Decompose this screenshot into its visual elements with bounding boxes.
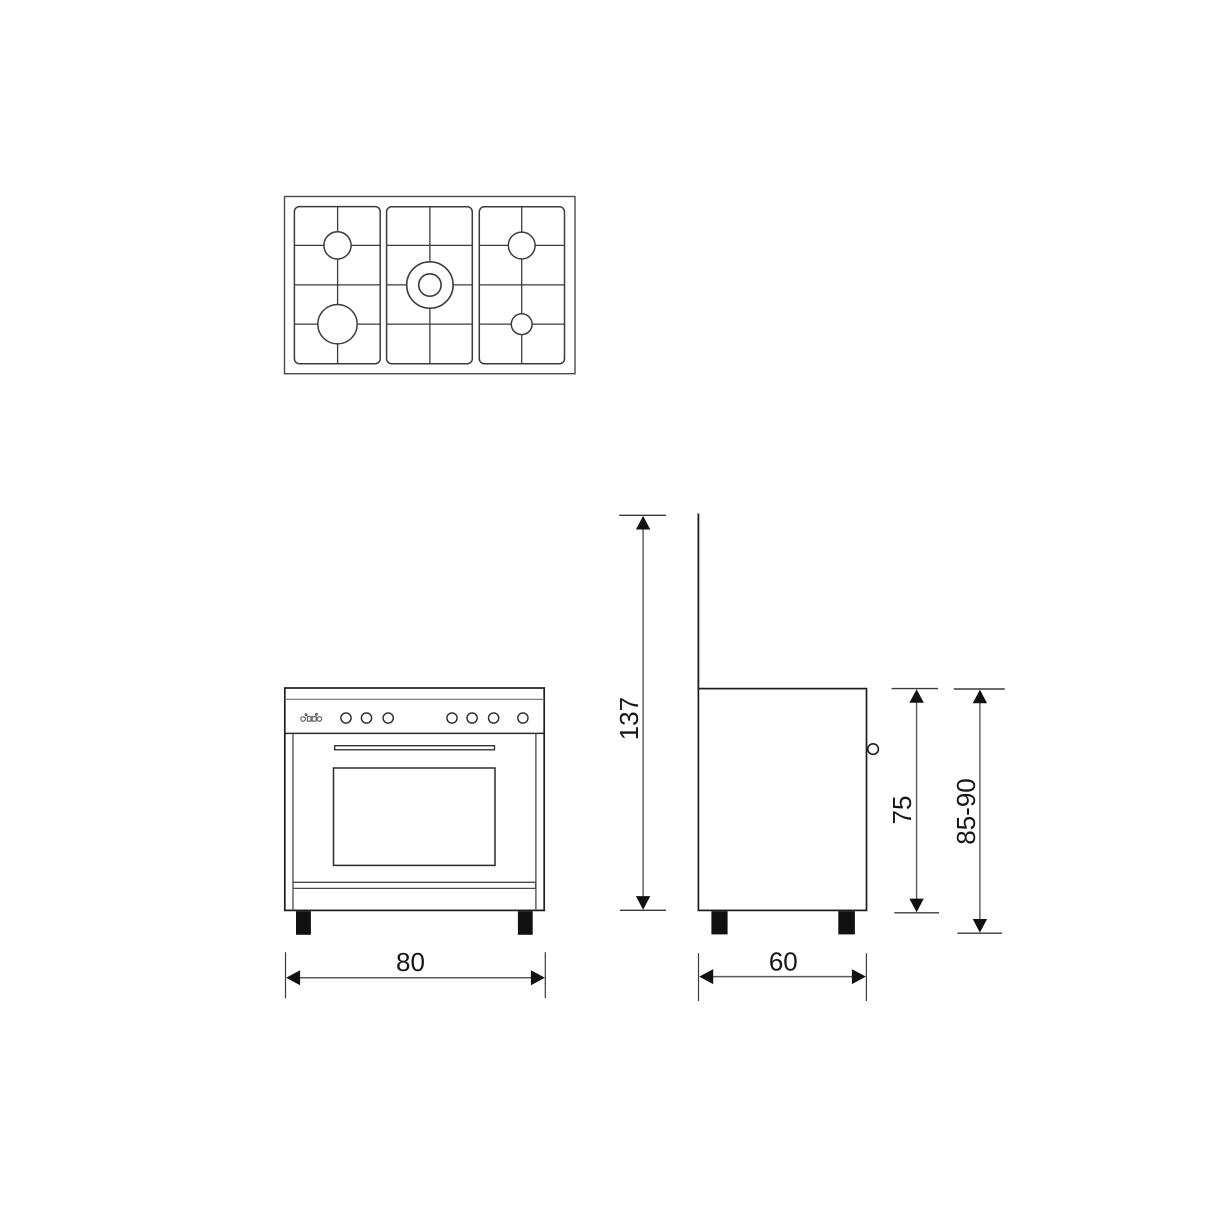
- svg-text:75: 75: [887, 796, 917, 825]
- svg-text:85-90: 85-90: [951, 778, 981, 845]
- svg-text:60: 60: [769, 947, 798, 977]
- svg-text:80: 80: [396, 947, 425, 977]
- svg-text:137: 137: [614, 697, 644, 740]
